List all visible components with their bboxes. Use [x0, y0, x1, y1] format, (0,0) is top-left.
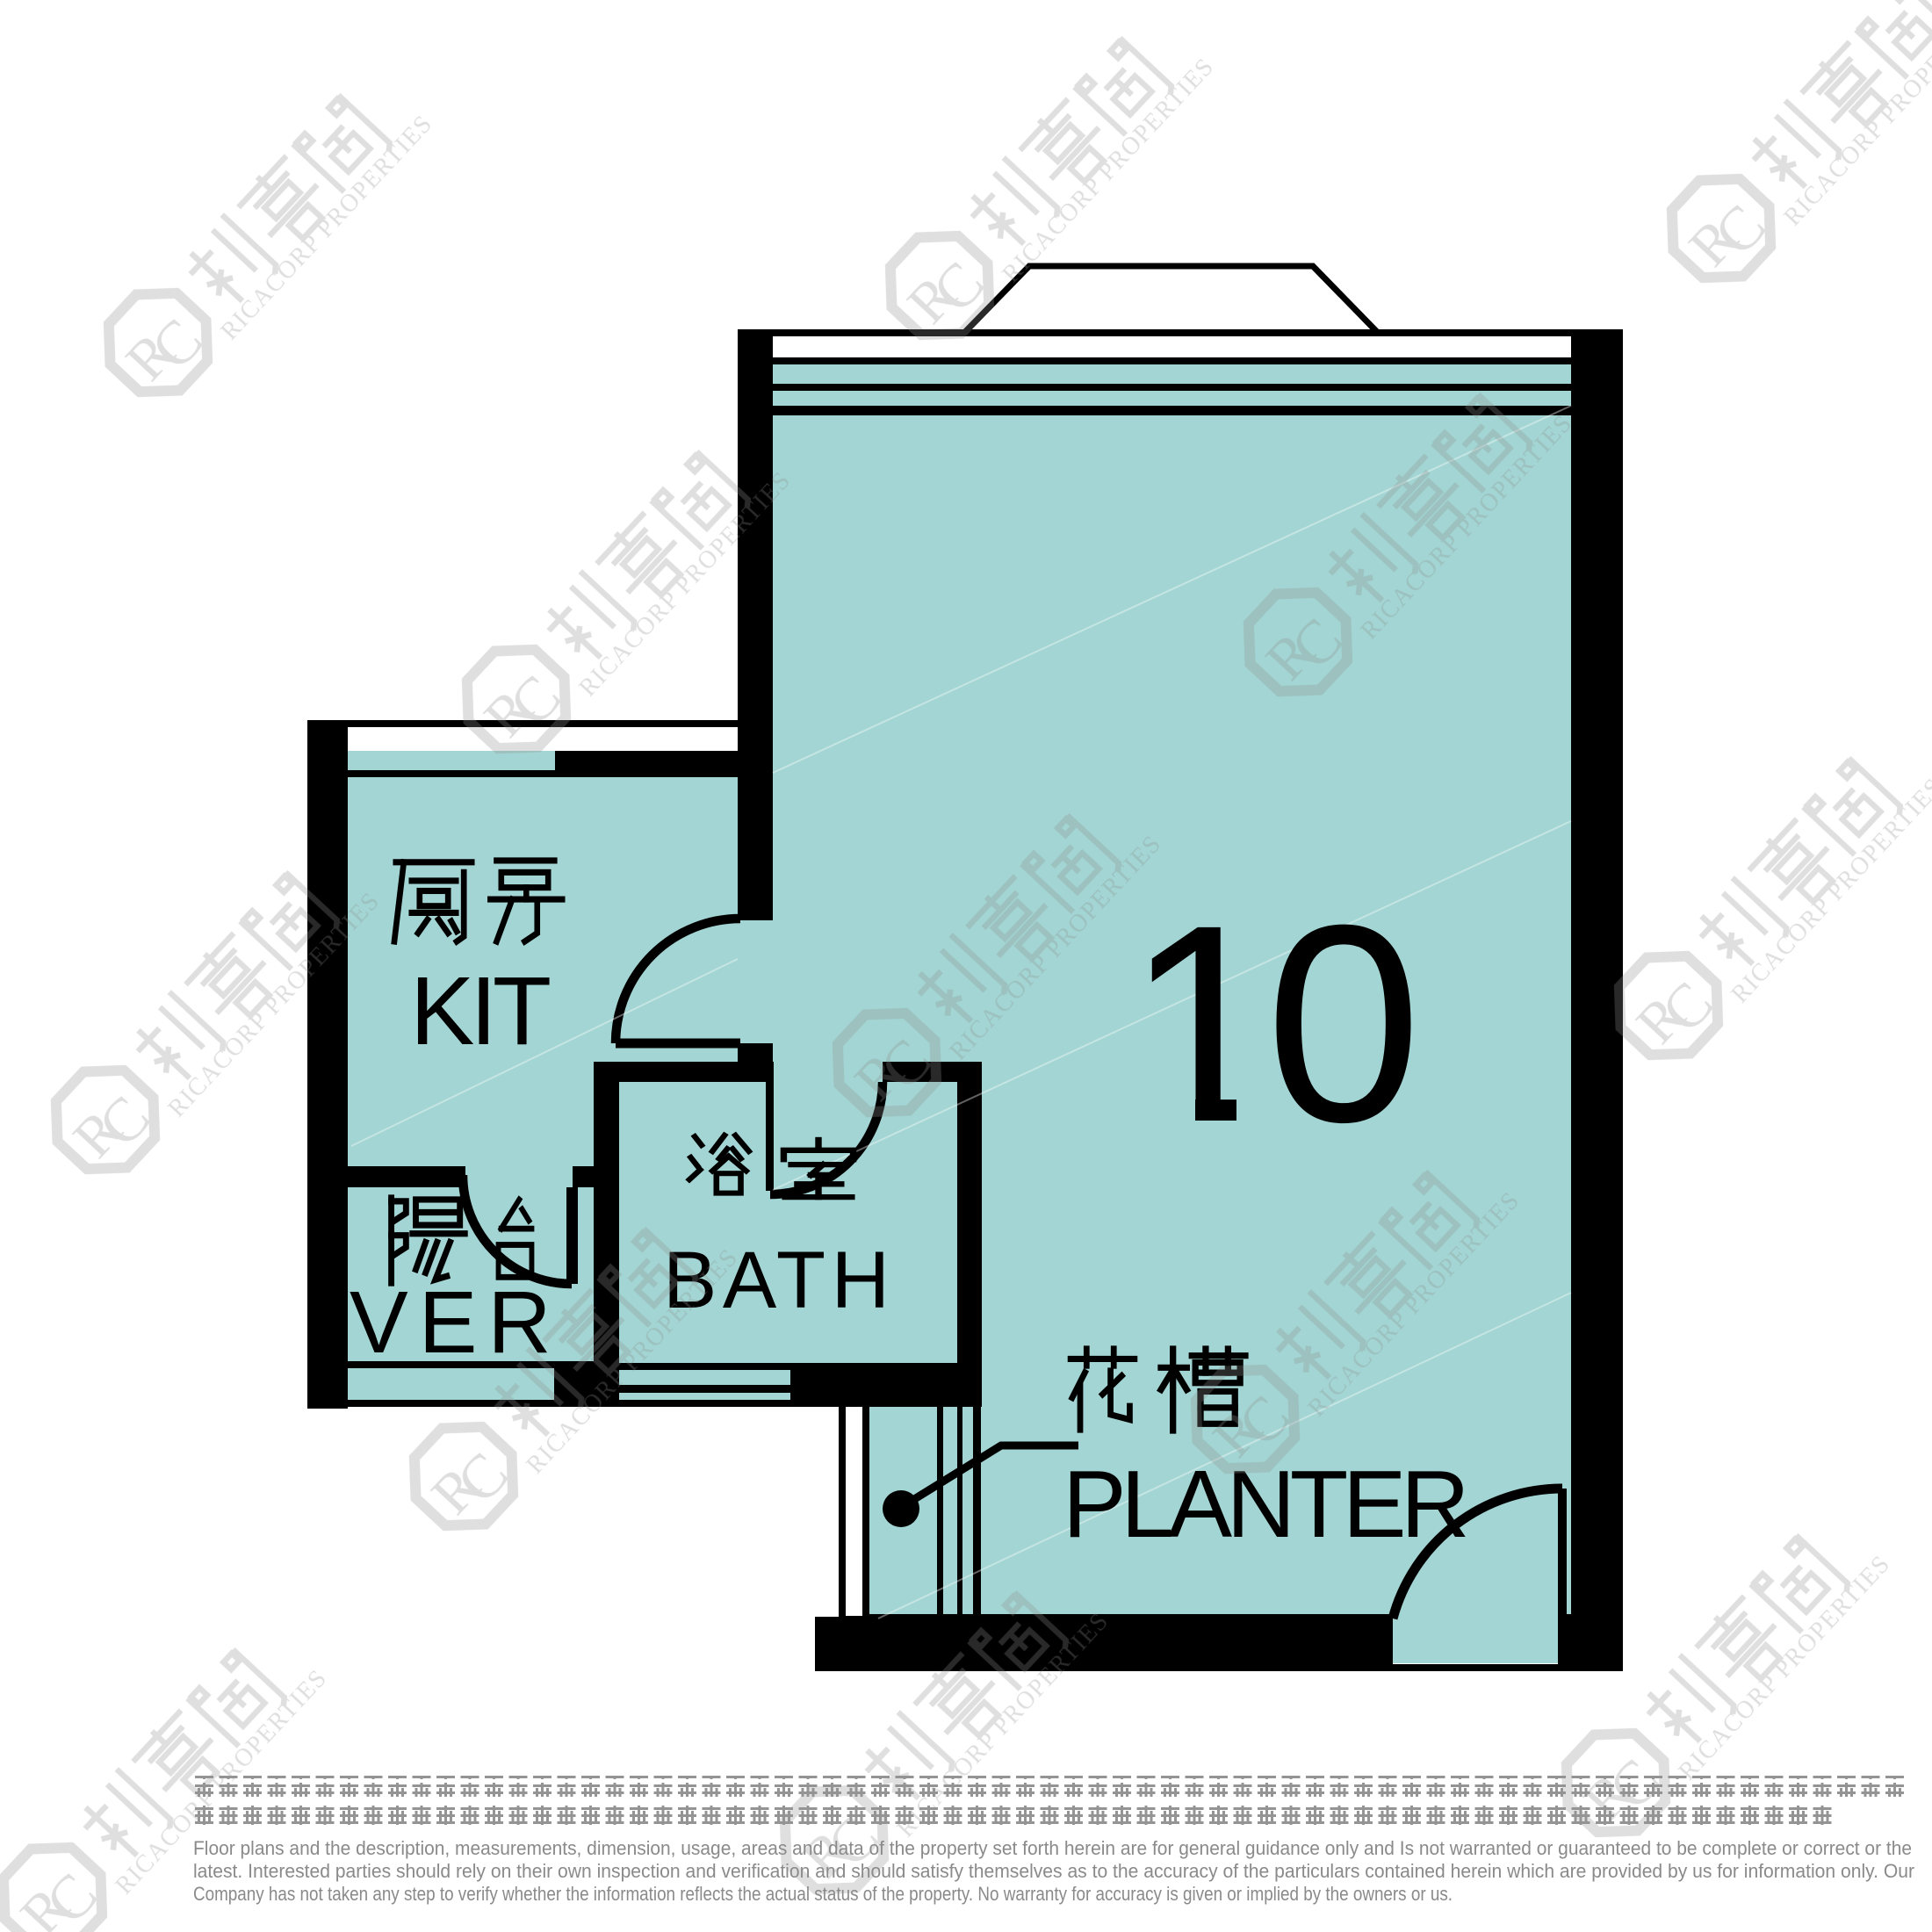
svg-text:latest. Interested parties sho: latest. Interested parties should rely o…: [193, 1860, 1914, 1882]
svg-text:VER: VER: [350, 1273, 562, 1372]
svg-text:10: 10: [1125, 866, 1415, 1180]
svg-text:Floor plans and the descriptio: Floor plans and the description, measure…: [193, 1837, 1912, 1859]
svg-text:KIT: KIT: [410, 957, 550, 1065]
svg-text:Company has not taken any step: Company has not taken any step to verify…: [193, 1883, 1453, 1905]
